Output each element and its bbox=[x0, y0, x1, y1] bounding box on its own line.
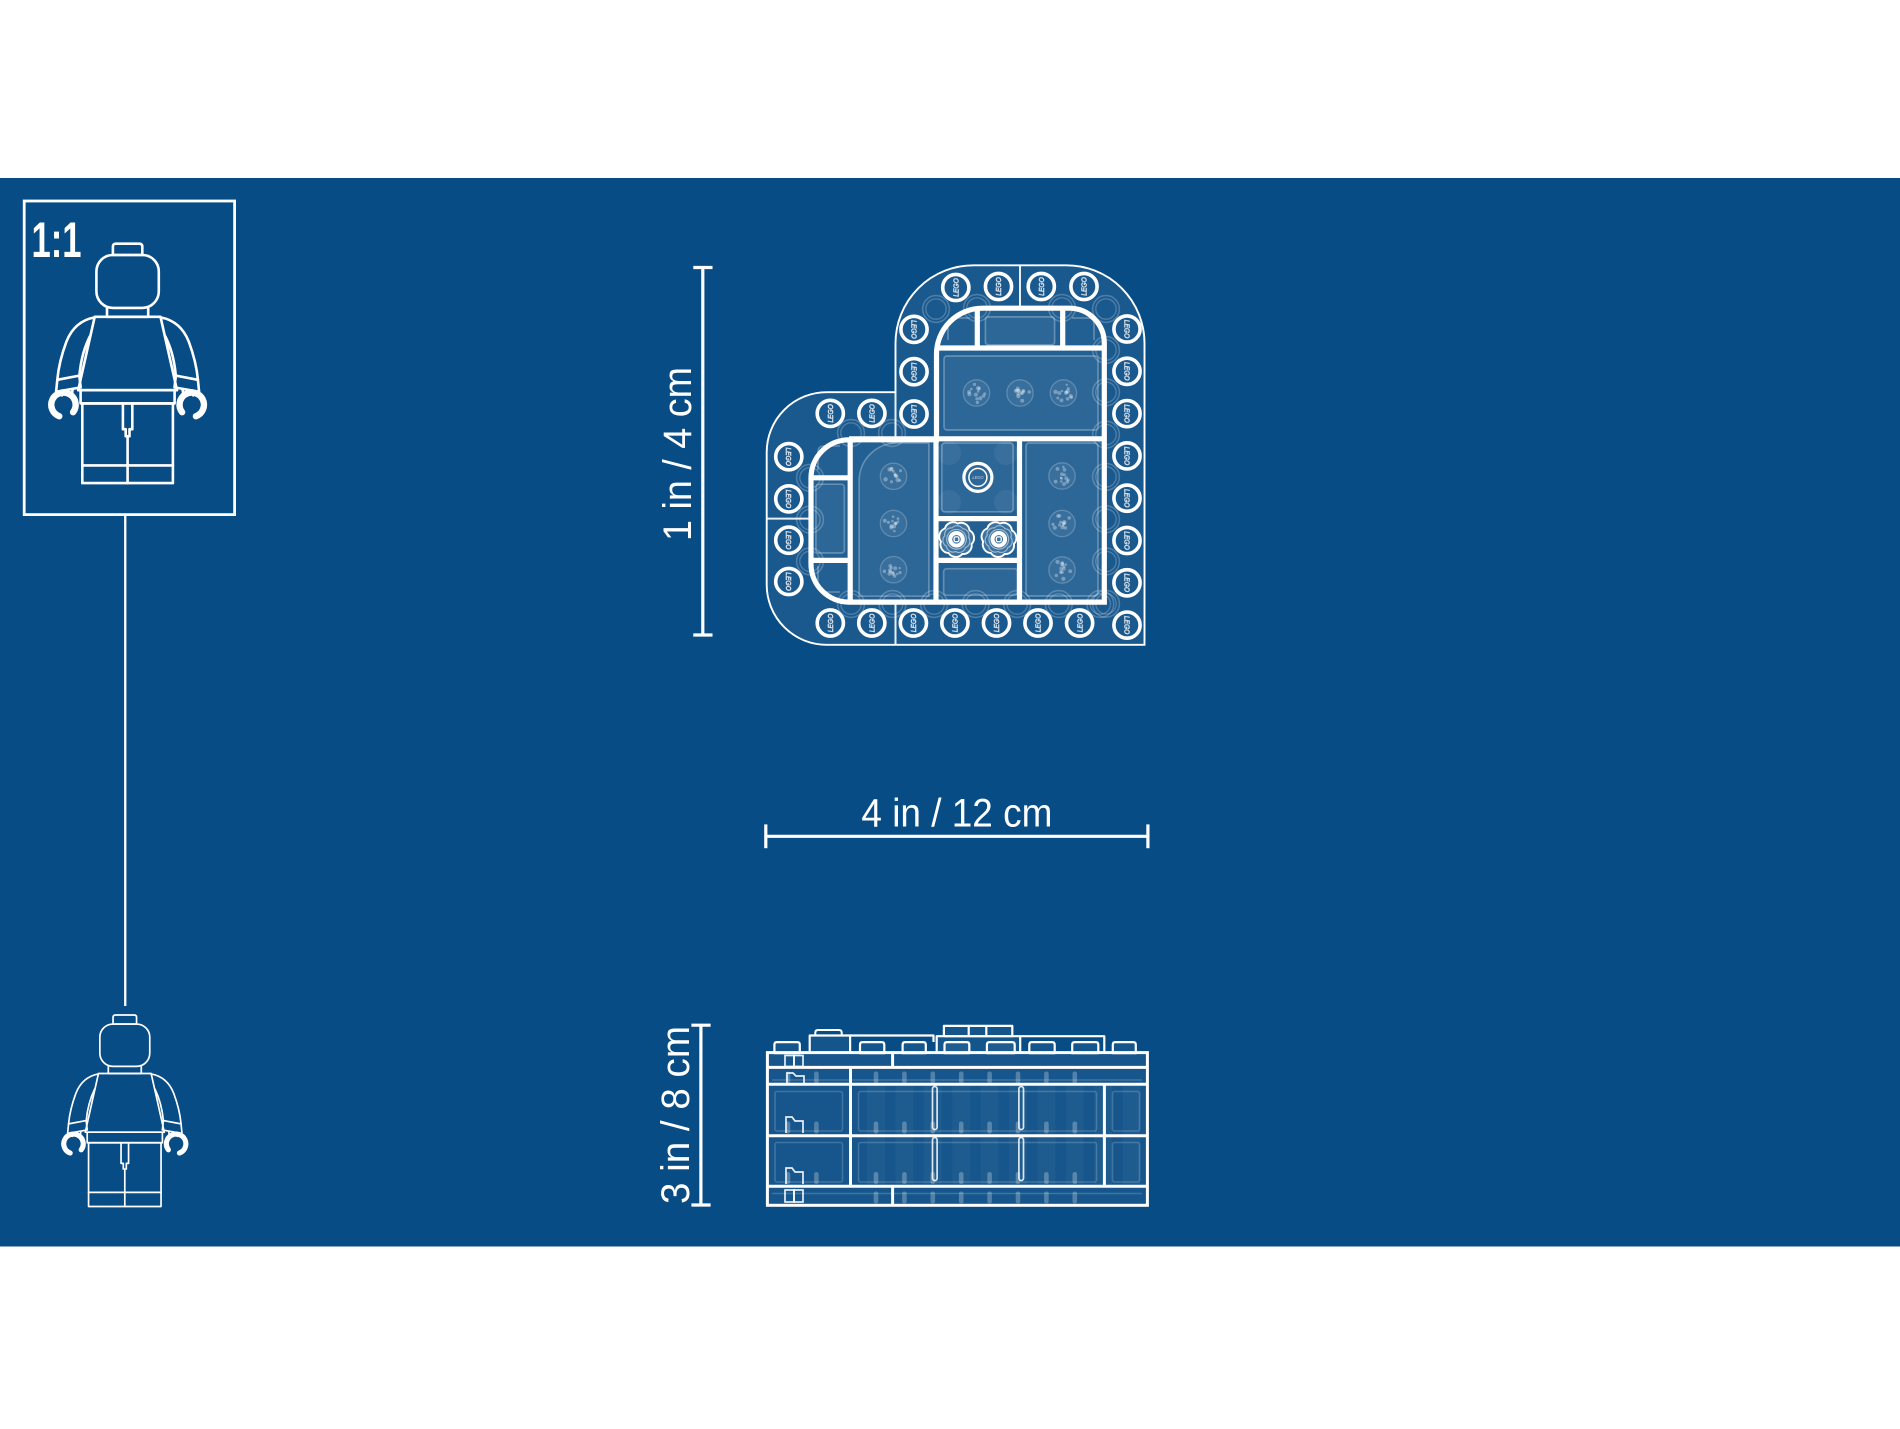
svg-text:LEGO: LEGO bbox=[1122, 574, 1131, 593]
svg-text:LEGO: LEGO bbox=[992, 614, 1001, 633]
svg-text:LEGO: LEGO bbox=[909, 320, 918, 339]
svg-text:LEGO: LEGO bbox=[784, 572, 793, 591]
svg-text:LEGO: LEGO bbox=[909, 405, 918, 424]
svg-text:LEGO: LEGO bbox=[1122, 531, 1131, 550]
svg-text:LEGO: LEGO bbox=[826, 614, 835, 633]
svg-text:LEGO: LEGO bbox=[784, 490, 793, 509]
svg-text:LEGO: LEGO bbox=[868, 614, 877, 633]
svg-text:LEGO: LEGO bbox=[1122, 362, 1131, 381]
svg-text:LEGO: LEGO bbox=[784, 531, 793, 550]
svg-text:LEGO: LEGO bbox=[1037, 277, 1046, 296]
svg-text:LEGO: LEGO bbox=[1122, 320, 1131, 339]
svg-text:LEGO: LEGO bbox=[784, 447, 793, 466]
svg-text:3 in / 8 cm: 3 in / 8 cm bbox=[654, 1026, 698, 1204]
svg-text:LEGO: LEGO bbox=[994, 277, 1003, 296]
svg-text:LEGO: LEGO bbox=[1122, 489, 1131, 508]
svg-text:4 in / 12 cm: 4 in / 12 cm bbox=[861, 792, 1052, 836]
svg-text:LEGO: LEGO bbox=[1122, 404, 1131, 423]
svg-text:LEGO: LEGO bbox=[826, 404, 835, 423]
svg-text:1 in / 4 cm: 1 in / 4 cm bbox=[656, 367, 700, 541]
svg-text:LEGO: LEGO bbox=[972, 475, 983, 481]
svg-text:1:1: 1:1 bbox=[32, 212, 82, 268]
svg-text:LEGO: LEGO bbox=[1034, 614, 1043, 633]
svg-text:LEGO: LEGO bbox=[1122, 616, 1131, 635]
svg-text:LEGO: LEGO bbox=[909, 614, 918, 633]
svg-text:LEGO: LEGO bbox=[951, 614, 960, 633]
svg-text:LEGO: LEGO bbox=[1122, 447, 1131, 466]
svg-text:LEGO: LEGO bbox=[1075, 614, 1084, 633]
svg-text:LEGO: LEGO bbox=[868, 404, 877, 423]
svg-text:LEGO: LEGO bbox=[952, 278, 961, 297]
svg-text:LEGO: LEGO bbox=[1080, 277, 1089, 296]
svg-text:LEGO: LEGO bbox=[909, 362, 918, 381]
